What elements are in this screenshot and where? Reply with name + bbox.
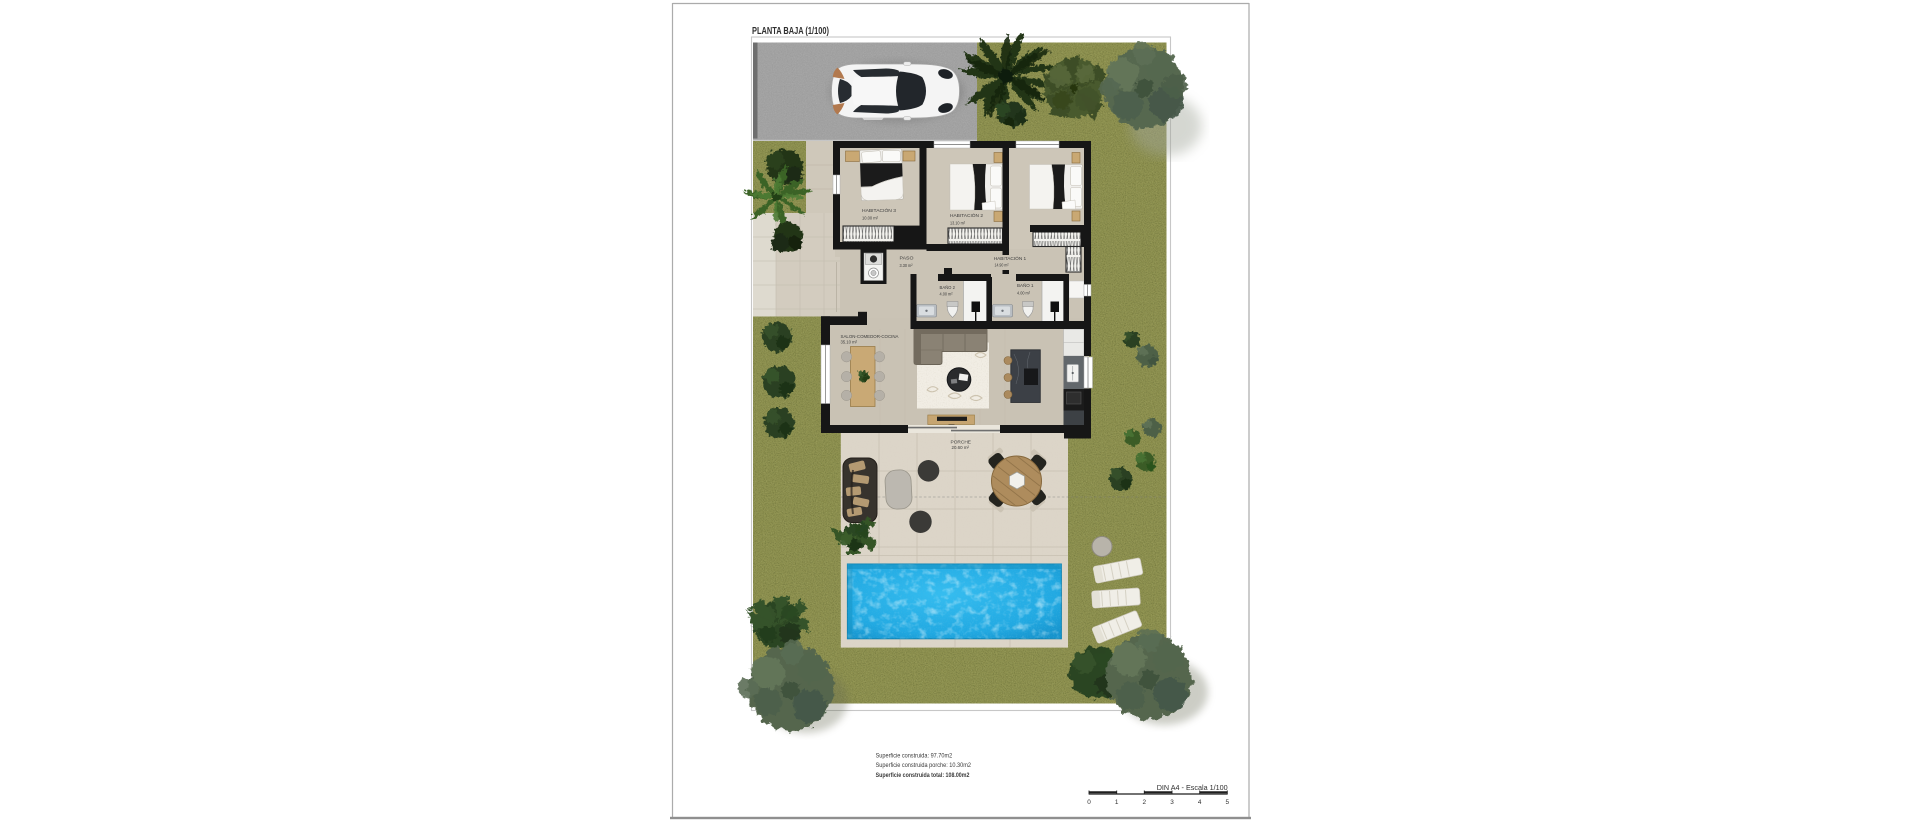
svg-text:BAÑO 1: BAÑO 1 bbox=[1017, 282, 1034, 289]
svg-text:PASO: PASO bbox=[900, 256, 914, 262]
svg-text:3.30 m²: 3.30 m² bbox=[900, 263, 913, 269]
svg-text:0: 0 bbox=[1087, 799, 1091, 806]
svg-text:3: 3 bbox=[1170, 799, 1174, 806]
svg-text:10.00 m²: 10.00 m² bbox=[862, 216, 878, 222]
svg-text:4.00 m²: 4.00 m² bbox=[1017, 291, 1030, 297]
svg-text:DIN A4 - Escala 1/100: DIN A4 - Escala 1/100 bbox=[1157, 783, 1228, 792]
svg-text:Superficie construida: 97.70m2: Superficie construida: 97.70m2 bbox=[876, 753, 953, 760]
svg-text:PORCHE: PORCHE bbox=[951, 440, 972, 446]
svg-text:HABITACIÓN 2: HABITACIÓN 2 bbox=[950, 212, 983, 219]
svg-text:PLANTA BAJA (1/100): PLANTA BAJA (1/100) bbox=[752, 25, 829, 37]
svg-text:1: 1 bbox=[1115, 799, 1119, 806]
svg-text:5: 5 bbox=[1226, 799, 1230, 806]
svg-text:HABITACIÓN 3: HABITACIÓN 3 bbox=[862, 207, 896, 214]
svg-text:BAÑO 2: BAÑO 2 bbox=[940, 284, 956, 291]
svg-text:HABITACIÓN 1: HABITACIÓN 1 bbox=[994, 255, 1027, 262]
svg-text:4.00 m²: 4.00 m² bbox=[940, 292, 953, 298]
svg-text:35.10 m²: 35.10 m² bbox=[841, 340, 858, 346]
svg-text:14.90 m²: 14.90 m² bbox=[995, 263, 1009, 269]
svg-text:13.10 m²: 13.10 m² bbox=[950, 221, 965, 227]
svg-text:SALON-COMEDOR-COCINA: SALON-COMEDOR-COCINA bbox=[841, 334, 900, 340]
svg-text:Superficie construida porche:: Superficie construida porche: 10.30m2 bbox=[876, 762, 972, 769]
svg-text:Superficie construida total: 1: Superficie construida total: 108.00m2 bbox=[876, 772, 970, 779]
svg-text:4: 4 bbox=[1198, 799, 1202, 806]
svg-text:2: 2 bbox=[1143, 799, 1147, 806]
svg-text:20.60 m²: 20.60 m² bbox=[952, 445, 970, 451]
